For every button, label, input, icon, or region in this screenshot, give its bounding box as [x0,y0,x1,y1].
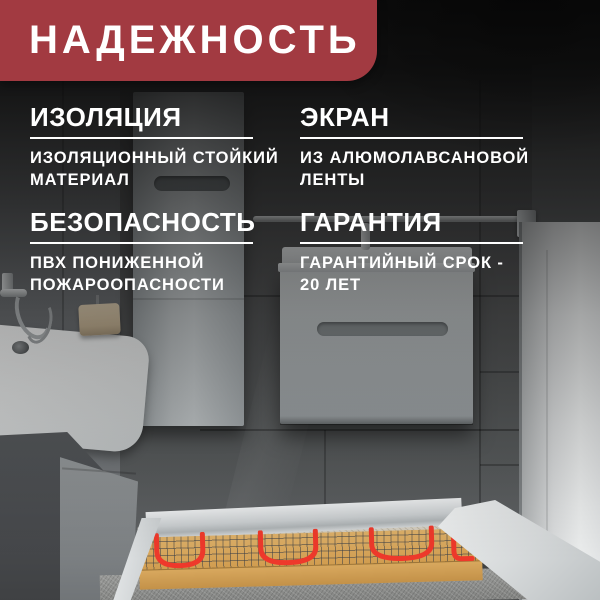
title-underline [30,242,253,244]
heating-cable-loop [371,528,432,560]
description-line: МАТЕРИАЛ [30,169,279,191]
title-underline [300,242,523,244]
vanity-handle [317,322,448,336]
feature-title: ЭКРАН [300,104,529,130]
feature-title: ГАРАНТИЯ [300,209,523,235]
vanity-shadow [280,416,473,425]
feature-description: ИЗ АЛЮМОЛАВСАНОВОЙ ЛЕНТЫ [300,147,529,191]
feature-insulation: ИЗОЛЯЦИЯ ИЗОЛЯЦИОННЫЙ СТОЙКИЙ МАТЕРИАЛ [30,104,279,191]
feature-safety: БЕЗОПАСНОСТЬ ПВХ ПОНИЖЕННОЙ ПОЖАРООПАСНО… [30,209,256,296]
feature-description: ИЗОЛЯЦИОННЫЙ СТОЙКИЙ МАТЕРИАЛ [30,147,279,191]
feature-title: БЕЗОПАСНОСТЬ [30,209,256,235]
description-line: ЛЕНТЫ [300,169,529,191]
description-line: 20 ЛЕТ [300,274,523,296]
tile-seam [324,430,326,514]
feature-warranty: ГАРАНТИЯ ГАРАНТИЙНЫЙ СРОК - 20 ЛЕТ [300,209,523,296]
title-underline [30,137,253,139]
feature-title: ИЗОЛЯЦИЯ [30,104,279,130]
feature-description: ГАРАНТИЙНЫЙ СРОК - 20 ЛЕТ [300,252,523,296]
title-underline [300,137,523,139]
tile-seam [480,371,522,373]
feature-description: ПВХ ПОНИЖЕННОЙ ПОЖАРООПАСНОСТИ [30,252,256,296]
reliability-banner: НАДЕЖНОСТЬ [0,0,377,81]
heating-cable-loop [260,531,316,564]
description-line: ИЗОЛЯЦИОННЫЙ СТОЙКИЙ [30,147,279,169]
cabinet-door-seam [133,298,244,300]
description-line: ИЗ АЛЮМОЛАВСАНОВОЙ [300,147,529,169]
heating-cable-loop [156,534,203,566]
heating-cable [138,524,482,588]
heating-mat [138,524,482,588]
banner-title: НАДЕЖНОСТЬ [29,18,361,63]
description-line: ПВХ ПОНИЖЕННОЙ [30,252,256,274]
description-line: ГАРАНТИЙНЫЙ СРОК - [300,252,523,274]
tile-seam [480,464,524,466]
feature-screen: ЭКРАН ИЗ АЛЮМОЛАВСАНОВОЙ ЛЕНТЫ [300,104,529,191]
bathtub-drain [12,341,29,354]
hanging-towel [78,303,121,336]
description-line: ПОЖАРООПАСНОСТИ [30,274,256,296]
promo-image: НАДЕЖНОСТЬ ИЗОЛЯЦИЯ ИЗОЛЯЦИОННЫЙ СТОЙКИЙ… [0,0,600,600]
